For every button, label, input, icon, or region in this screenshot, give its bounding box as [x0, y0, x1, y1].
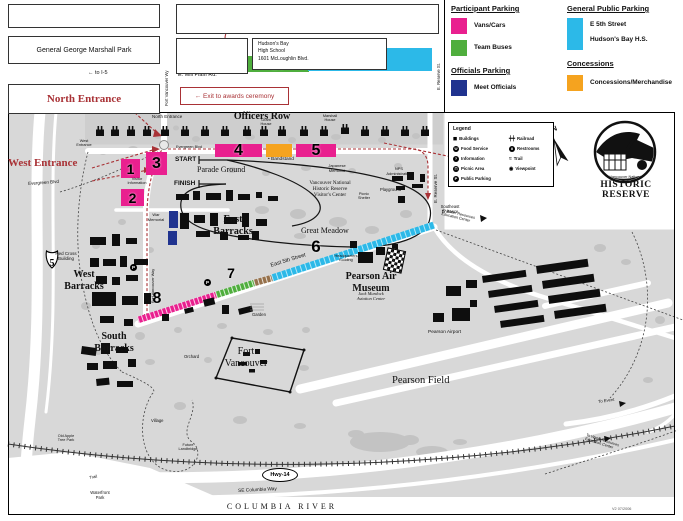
fort-vancouver-label: Fort Vancouver [225, 346, 268, 369]
logo-line1-label: Vancouver National [610, 175, 643, 179]
map-legend-title: Legend [453, 126, 550, 132]
map-legend-item-picnic-area: ⊓Picnic Area [453, 164, 505, 173]
map-legend-item-information: ?Information [453, 154, 505, 163]
great-meadow-label: Great Meadow [301, 226, 349, 235]
map-legend-item-trail: ≈Trail [509, 154, 549, 163]
map-legend-col1: ◼BuildingsΨFood Service?Information⊓Picn… [453, 134, 505, 183]
officials-parking-bar-2 [168, 231, 177, 245]
map-legend-item-label: Food Service [461, 146, 488, 151]
red-cross-building-label: Red Cross Building [55, 251, 76, 261]
officials-parking-bar-1 [169, 211, 178, 228]
map-legend-item-label: Public Parking [461, 176, 491, 181]
grant-house-label: Grant House [261, 118, 272, 127]
pearson-field-label: Pearson Field [392, 375, 449, 387]
japanese-memorial-label: Japanese Memorial [328, 164, 345, 173]
information-icon: ? [453, 156, 459, 162]
map-legend-item-label: Railroad [517, 136, 534, 141]
e-reserve-st-map-label: E. Reserve St. [433, 174, 438, 203]
school-box: Hudson's Bay High School 1601 McLoughlin… [252, 38, 387, 70]
visitor-center-label: Vancouver National Historic Reserve Visi… [309, 181, 350, 199]
map-legend-item-buildings: ◼Buildings [453, 134, 505, 143]
orchard-label: Orchard [184, 355, 199, 360]
north-entrance-map-label: North Entrance [152, 114, 182, 119]
exit-awards-label: ← Exit to awards ceremony [195, 93, 274, 100]
map-legend-item-label: Picnic Area [461, 166, 484, 171]
parking-area-5: 5 [296, 144, 336, 157]
concessions-label: Concessions/Merchandise [590, 79, 672, 86]
map-legend-item-railroad: ┿┿Railroad [509, 134, 549, 143]
marshall-house-label: Marshall House [323, 114, 337, 123]
public-parking-icon: P [453, 176, 459, 182]
map-legend-item-viewpoint: ◉Viewpoint [509, 164, 549, 173]
meet-officials-swatch [451, 80, 467, 96]
map-legend-item-label: Buildings [459, 136, 479, 141]
pearson-airport-label: Pearson Airport [428, 330, 461, 336]
marshall-park-box: General George Marshall Park [8, 36, 160, 64]
columbia-river-label: COLUMBIA RIVER [227, 502, 337, 511]
map-legend-item-label: Information [461, 156, 485, 161]
jack-murdock-label: Jack Murdock Aviation Center [357, 291, 385, 301]
vans-cars-label: Vans/Cars [474, 22, 505, 29]
picnic-area-icon: ⊓ [453, 166, 459, 172]
map-legend-col2: ┿┿RailroadiiRestrooms≈Trail◉Viewpoint [509, 134, 549, 183]
map-legend-box: Legend ◼BuildingsΨFood Service?Informati… [448, 122, 554, 187]
west-entrance-map-label: West Entrance [76, 139, 91, 148]
concessions-bar [266, 144, 292, 157]
public-parking-title: General Public Parking [567, 4, 649, 13]
marshall-park-label: General George Marshall Park [37, 47, 132, 54]
viewpoint-icon: ◉ [509, 166, 513, 172]
parking-area-1: 1 [121, 159, 140, 178]
top-left-box [8, 4, 160, 28]
restrooms-icon: ii [509, 146, 515, 152]
north-entrance-label: North Entrance [47, 93, 121, 105]
buildings-icon: ◼ [453, 136, 457, 142]
parking-area-3: 3 [146, 152, 167, 175]
west-entrance-label: West Entrance [8, 157, 77, 170]
meet-officials-label: Meet Officials [474, 84, 516, 91]
route-number-7: 7 [223, 265, 239, 281]
route-number-6: 6 [306, 237, 326, 257]
parking-area-2: 2 [121, 189, 144, 206]
railroad-icon: ┿┿ [509, 136, 515, 142]
nps-administration-label: NPS Administration [386, 167, 411, 176]
food-service-icon: Ψ [453, 146, 459, 152]
north-entrance-box: North Entrance [8, 84, 160, 114]
waterfront-park-label: Waterfront Park [90, 491, 109, 501]
exit-awards-box: ← Exit to awards ceremony [180, 87, 289, 105]
vans-cars-swatch [451, 18, 467, 34]
to-i5-label: ← to I-5 [88, 70, 108, 76]
map-legend-item-label: Viewpoint [515, 166, 535, 171]
concessions-swatch [567, 75, 583, 91]
parking-icon-1: P [204, 279, 211, 286]
parking-area-4: 4 [215, 144, 262, 157]
future-landbridge-label: Future Landbridge [178, 443, 197, 452]
officials-parking-title: Officials Parking [451, 66, 510, 75]
start-label: START [175, 156, 196, 163]
e-5th-street-label: E 5th Street [590, 21, 626, 28]
hudsons-bay-hs-label: Hudson's Bay H.S. [590, 36, 648, 43]
top-middle-box [176, 4, 439, 34]
map-legend-item-food-service: ΨFood Service [453, 144, 505, 153]
hwy-14-badge: Hwy-14 [262, 468, 298, 482]
fort-vancouver-wy-top-label: Fort Vancouver Wy [165, 71, 170, 107]
concessions-title: Concessions [567, 59, 614, 68]
garden-label: Garden [252, 313, 266, 318]
logo-line3-label: RESERVE [602, 190, 650, 201]
map-legend-item-public-parking: PPublic Parking [453, 174, 505, 183]
e-reserve-st-top-label: E. Reserve St. [437, 63, 442, 90]
village-label: Village [151, 419, 164, 424]
participant-parking-title: Participant Parking [451, 4, 519, 13]
east-barracks-label: East Barracks [213, 214, 252, 237]
i5-shield-number: 5 [50, 258, 55, 269]
finish-label: FINISH [174, 180, 195, 187]
map-legend-item-label: Restrooms [517, 146, 539, 151]
picnic-shelter-label: Picnic Shelter [358, 192, 370, 201]
trail-icon: ≈ [509, 156, 512, 162]
fort-vancouver-way-map-label: Fort Vancouver Way [151, 269, 155, 303]
map-legend-item-label: Trail [514, 156, 523, 161]
south-barracks-label: South Barracks [94, 331, 133, 354]
map-legend-item-restrooms: iiRestrooms [509, 144, 549, 153]
old-apple-tree-label: Old Apple Tree Park [58, 434, 75, 443]
page: 5 General George Marshall Park Hudson's … [0, 0, 683, 521]
bandstand-label: • Bandstand [268, 157, 294, 163]
playground-label: Playground [380, 188, 401, 193]
headquarters-building-label: Headquarters Building [334, 254, 357, 263]
team-buses-label: Team Buses [474, 44, 512, 51]
block-box [176, 38, 248, 74]
map-legend-cols: ◼BuildingsΨFood Service?Information⊓Picn… [453, 134, 550, 183]
public-parking-swatch [567, 18, 583, 50]
war-memorial-label: War Memorial [148, 213, 164, 222]
map-code-label: V2 07/2006 [612, 507, 631, 511]
team-buses-swatch [451, 40, 467, 56]
visitor-information-label: Visitor Information [128, 177, 147, 186]
west-barracks-label: West Barracks [64, 269, 103, 292]
parade-ground-label: Parade Ground [197, 165, 245, 174]
parking-icon-2: P [130, 264, 137, 271]
evergreen-blvd-top-label: Evergreen Blvd [176, 145, 202, 149]
